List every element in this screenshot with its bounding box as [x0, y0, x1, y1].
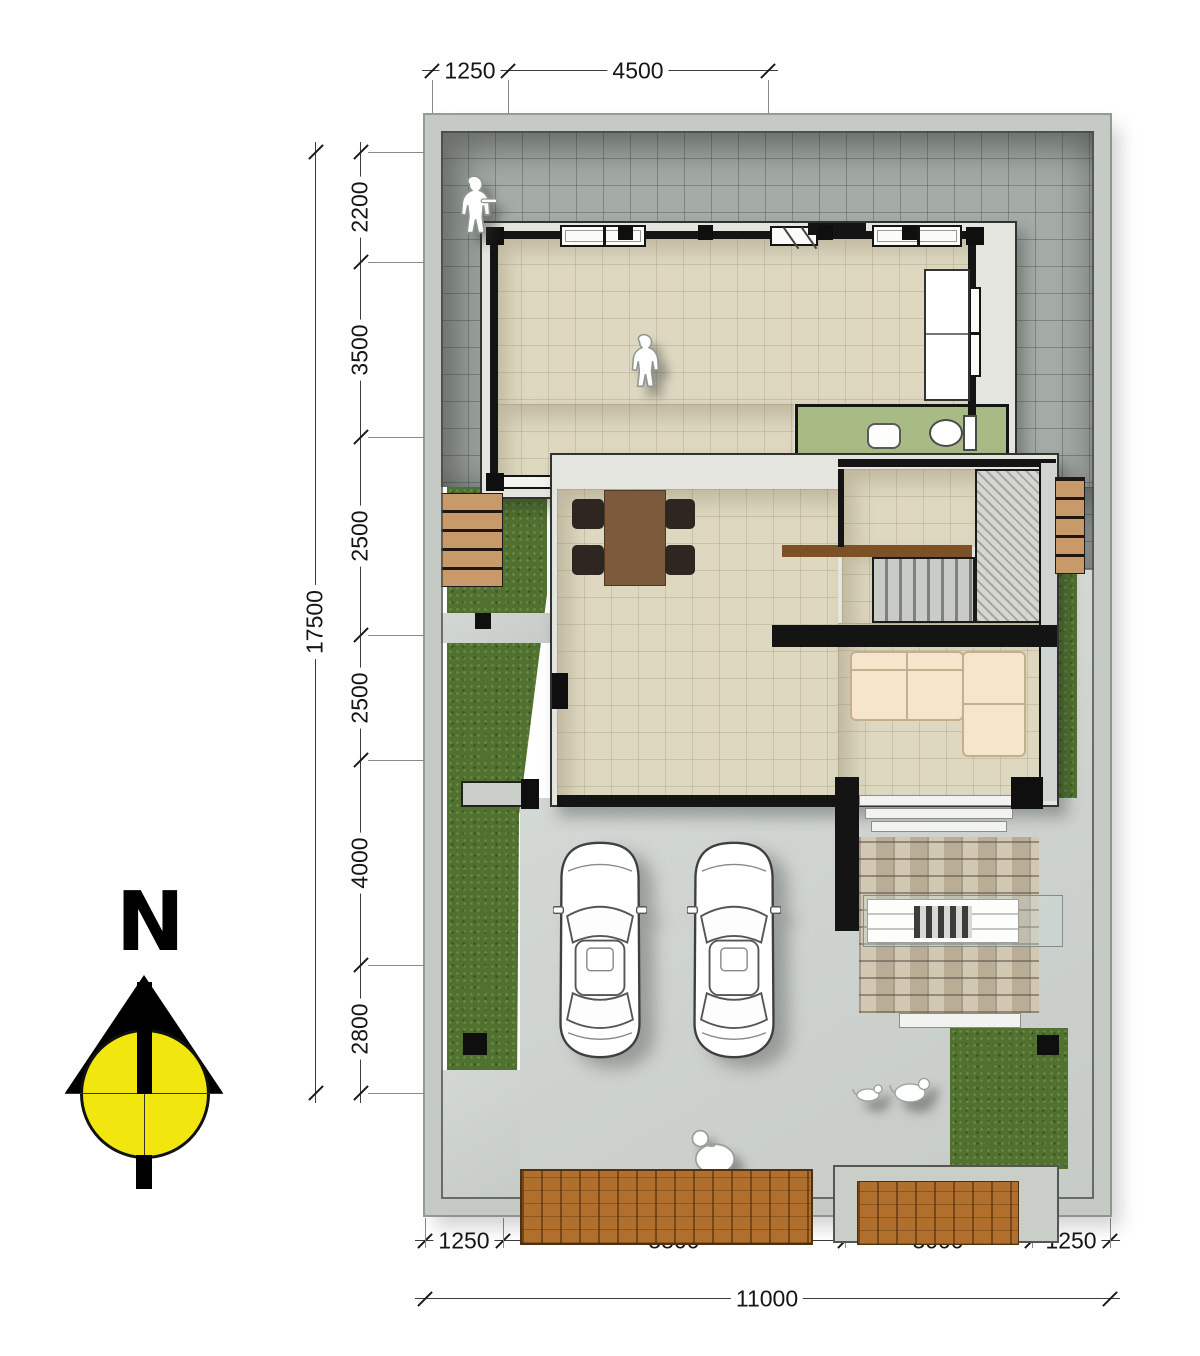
- hall-floor: [842, 469, 975, 547]
- sofa-cushion-seam: [964, 703, 1024, 705]
- step: [871, 821, 1007, 832]
- compass-north-label: N: [116, 882, 185, 964]
- dim-extension: [425, 1218, 426, 1248]
- dim-left-4000: 4000: [347, 832, 374, 893]
- living-floor-block: [550, 453, 1059, 807]
- dim-extension: [368, 152, 424, 153]
- dining-chair: [572, 545, 604, 575]
- column-post: [818, 225, 833, 240]
- column-post: [463, 1033, 487, 1055]
- planter-right: [1055, 477, 1085, 574]
- dim-tick: [417, 1291, 433, 1307]
- dim-tick: [353, 752, 369, 768]
- dim-left-2500a: 2500: [347, 505, 374, 566]
- dim-extension: [368, 760, 424, 761]
- staircase: [872, 557, 975, 623]
- car-1: [553, 835, 647, 1065]
- dim-left-3500: 3500: [347, 319, 374, 380]
- dim-extension: [432, 80, 433, 113]
- sofa-cushion-seam: [906, 653, 908, 719]
- column-post: [552, 673, 568, 709]
- sofa-back-seam: [852, 669, 962, 671]
- dim-tick: [500, 63, 516, 79]
- window-east: [969, 287, 981, 377]
- window-mullion: [917, 227, 920, 245]
- house-plot-plan: [425, 115, 1110, 1215]
- grill-grate: [914, 906, 972, 938]
- dining-chair: [572, 499, 604, 529]
- window-north-2: [872, 225, 962, 247]
- column-post: [966, 227, 984, 245]
- compass-stem-icon: [136, 1155, 152, 1189]
- column-post: [698, 225, 713, 240]
- sofa-main: [850, 651, 964, 721]
- deck-side-frame: [833, 1165, 1059, 1243]
- dim-left-line: [360, 142, 361, 1103]
- deck-side-entry: [857, 1181, 1019, 1245]
- floor-plan-sheet: N 1250 4500 2200 3500 2500 2500 4000 280…: [0, 0, 1200, 1356]
- dim-top-1250: 1250: [439, 58, 500, 85]
- dim-left-17500: 17500: [302, 585, 329, 659]
- column-post: [1011, 777, 1043, 809]
- fence-post: [475, 613, 491, 629]
- column-post: [521, 779, 539, 809]
- dim-extension: [368, 635, 424, 636]
- dim-tick: [424, 63, 440, 79]
- column-post: [902, 225, 917, 240]
- planter-left: [437, 493, 503, 587]
- dim-extension: [503, 1218, 504, 1248]
- dim-extension: [368, 1093, 424, 1094]
- door-header: [808, 223, 866, 235]
- dim-tick: [1102, 1291, 1118, 1307]
- window-mullion: [971, 332, 979, 335]
- dim-tick: [353, 429, 369, 445]
- dim-left-2200: 2200: [347, 176, 374, 237]
- garden-path: [441, 613, 555, 643]
- wash-basin: [867, 423, 901, 449]
- dining-table: [604, 490, 666, 586]
- door-leaf-mark: [783, 227, 800, 249]
- toilet-tank: [963, 415, 977, 451]
- patio-side-wall: [835, 777, 859, 931]
- dining-chair: [665, 545, 695, 575]
- hall-north-wall: [838, 459, 1056, 467]
- dim-tick: [308, 1085, 324, 1101]
- stair-landing: [975, 469, 1041, 623]
- counter-seam: [926, 333, 968, 335]
- dining-south-wall: [557, 795, 838, 807]
- wall-west: [490, 231, 498, 491]
- dog-figures: [851, 1071, 943, 1109]
- deck-main-entry: [520, 1169, 813, 1245]
- dim-bottom-1250a: 1250: [433, 1228, 494, 1255]
- dining-chair: [665, 499, 695, 529]
- person-figure-room: [622, 331, 666, 391]
- walk-southwest: [441, 1070, 525, 1199]
- column-post: [1037, 1035, 1059, 1055]
- car-2: [687, 835, 781, 1065]
- window-north-1: [560, 225, 646, 247]
- window-mullion: [603, 227, 606, 245]
- column-post: [618, 225, 633, 240]
- patio-lower-step: [899, 1013, 1021, 1028]
- dim-extension: [508, 80, 509, 113]
- dim-extension: [368, 965, 424, 966]
- dim-tick: [353, 144, 369, 160]
- dim-tick: [353, 254, 369, 270]
- dim-tick: [760, 63, 776, 79]
- bench-table: [867, 899, 1019, 943]
- dim-extension: [1110, 1218, 1111, 1248]
- sofa-chaise: [962, 651, 1026, 757]
- dim-top-4500: 4500: [607, 58, 668, 85]
- dim-tick: [353, 957, 369, 973]
- dim-bottom-11000: 11000: [731, 1286, 803, 1313]
- dim-extension: [368, 437, 424, 438]
- dim-left-2800: 2800: [347, 998, 374, 1059]
- stair-threshold: [782, 545, 972, 557]
- living-north-wall: [772, 625, 1057, 647]
- dim-tick: [353, 627, 369, 643]
- main-room-floor: [494, 237, 971, 404]
- stair-corridor-floor: [842, 547, 872, 623]
- kitchen-counter: [924, 269, 970, 401]
- hall-west-wall: [838, 469, 844, 547]
- toilet: [929, 419, 963, 447]
- person-figure-backyard: [450, 173, 498, 237]
- patio-steps: [859, 791, 1019, 837]
- dim-left-2500b: 2500: [347, 667, 374, 728]
- compass-needle-icon: [137, 982, 152, 1094]
- dim-extension: [768, 80, 769, 113]
- step: [865, 808, 1013, 819]
- column-post: [486, 473, 504, 491]
- step: [859, 795, 1019, 806]
- dim-tick: [353, 1085, 369, 1101]
- dim-tick: [308, 144, 324, 160]
- dim-extension: [368, 262, 424, 263]
